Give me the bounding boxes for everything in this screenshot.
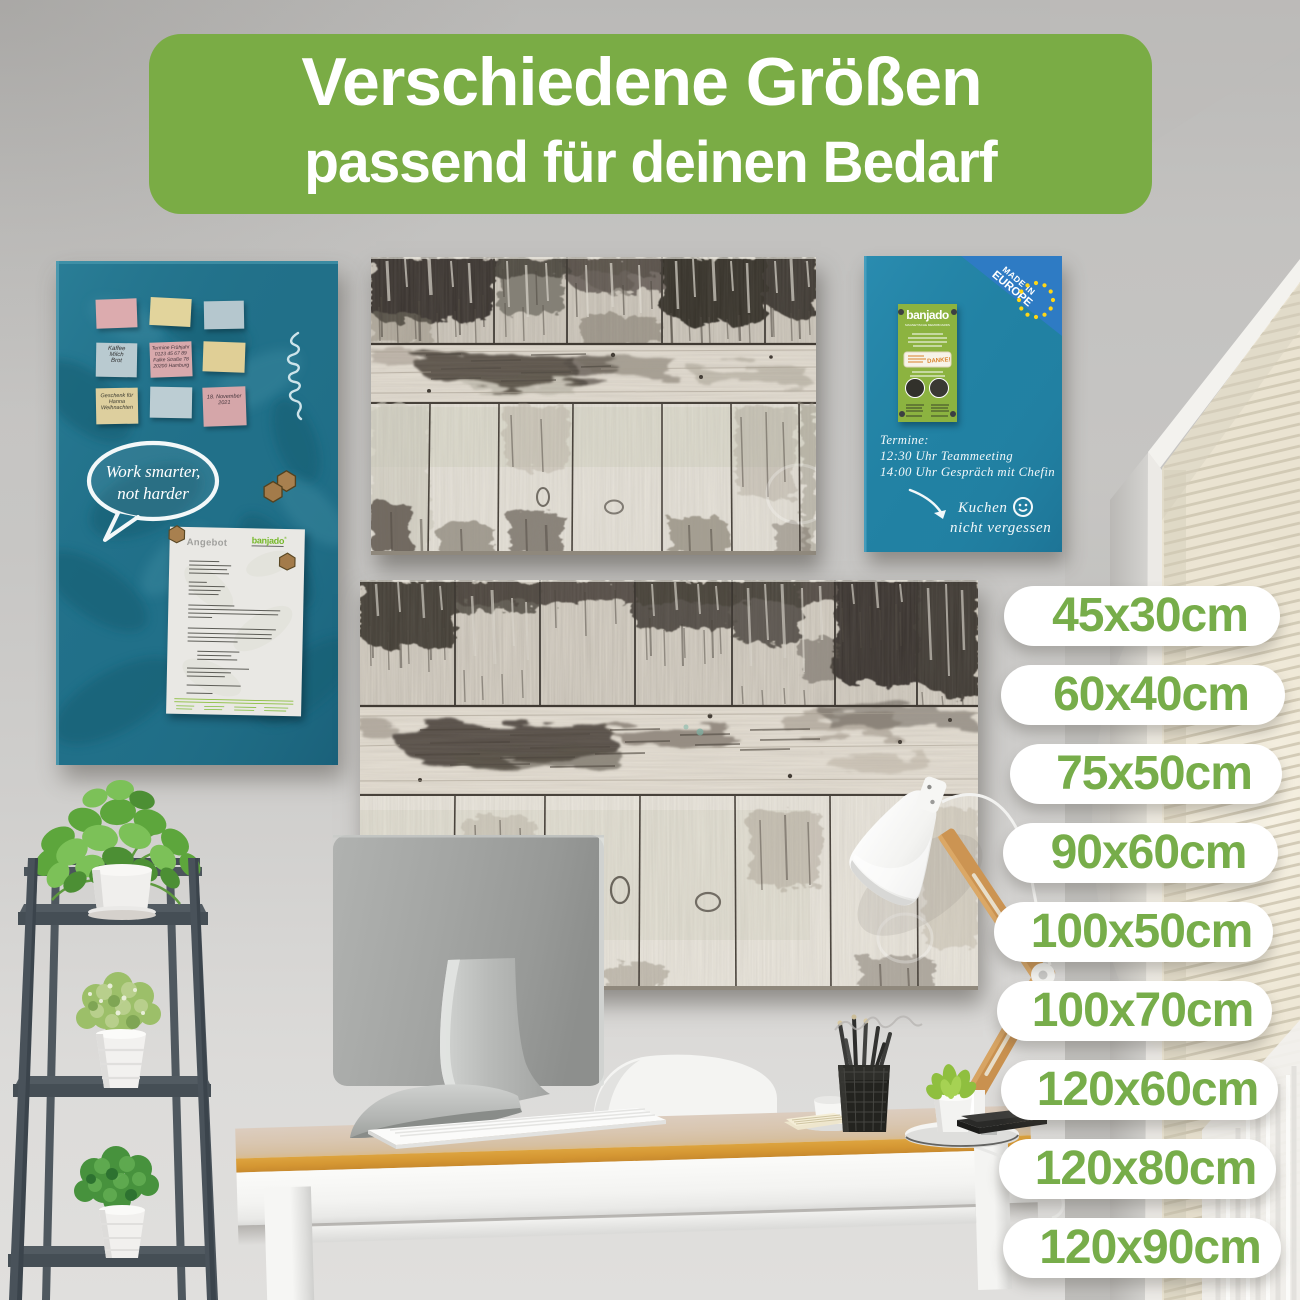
svg-text:Work smarter,: Work smarter, — [106, 462, 201, 481]
svg-text:not harder: not harder — [117, 484, 189, 503]
